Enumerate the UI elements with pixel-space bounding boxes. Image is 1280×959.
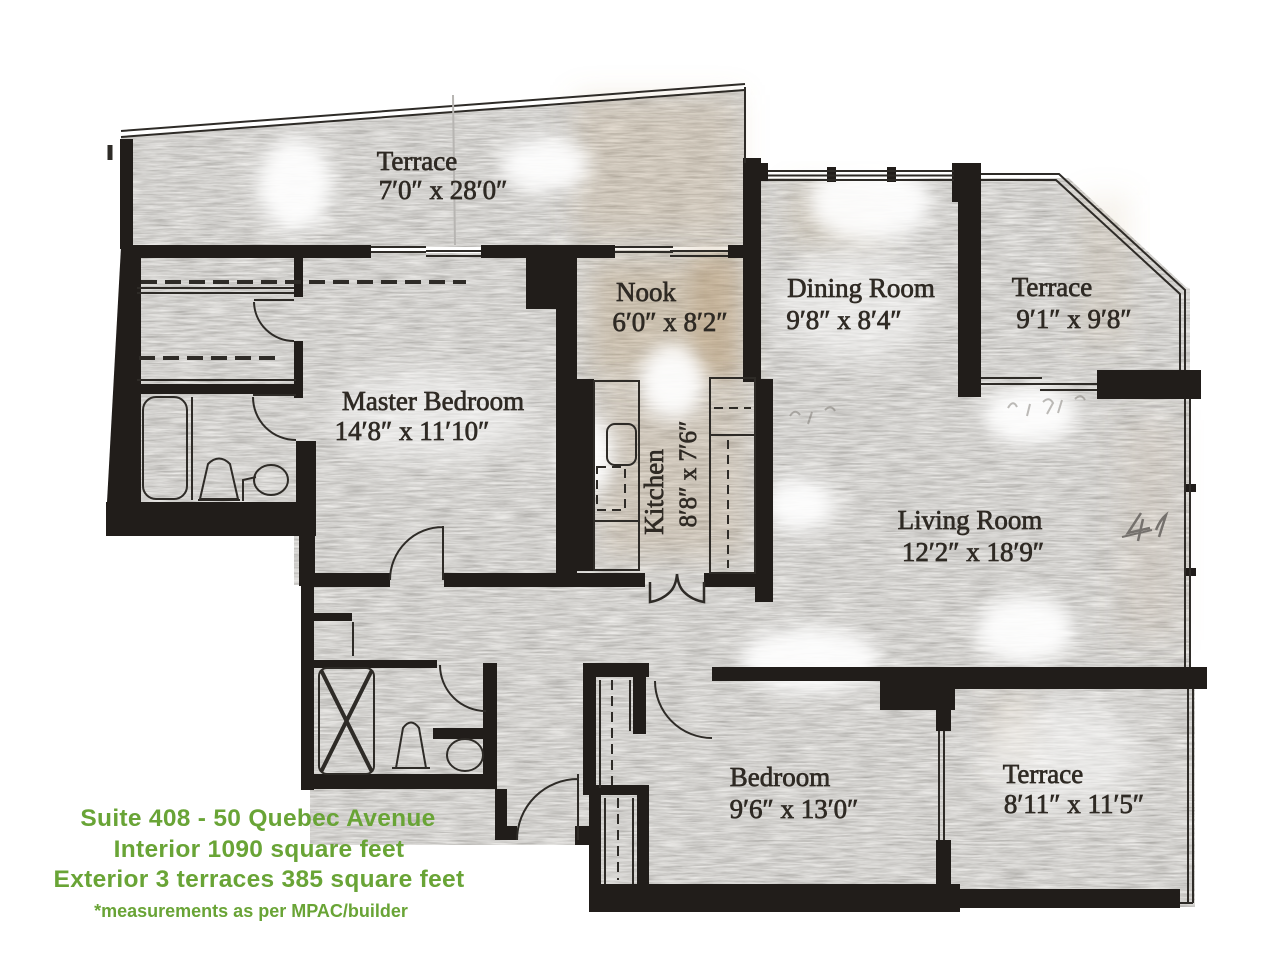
svg-text:Nook: Nook bbox=[616, 277, 676, 307]
svg-text:Terrace: Terrace bbox=[377, 146, 458, 176]
svg-text:Master Bedroom: Master Bedroom bbox=[342, 386, 524, 416]
svg-text:8′11″ x 11′5″: 8′11″ x 11′5″ bbox=[1004, 789, 1144, 819]
svg-text:12′2″ x 18′9″: 12′2″ x 18′9″ bbox=[902, 537, 1044, 567]
svg-text:Exterior 3 terraces 385 square: Exterior 3 terraces 385 square feet bbox=[54, 866, 465, 893]
svg-text:Suite 408 - 50 Quebec Avenue: Suite 408 - 50 Quebec Avenue bbox=[80, 805, 435, 832]
svg-text:9′8″ x 8′4″: 9′8″ x 8′4″ bbox=[786, 305, 901, 335]
svg-text:Terrace: Terrace bbox=[1003, 759, 1084, 789]
svg-text:9′6″ x 13′0″: 9′6″ x 13′0″ bbox=[730, 794, 859, 824]
svg-text:Terrace: Terrace bbox=[1012, 272, 1093, 302]
svg-text:Kitchen: Kitchen bbox=[639, 449, 669, 535]
svg-text:Living Room: Living Room bbox=[898, 505, 1043, 535]
svg-text:7′0″ x 28′0″: 7′0″ x 28′0″ bbox=[379, 175, 508, 205]
svg-text:Bedroom: Bedroom bbox=[730, 762, 831, 792]
svg-text:*measurements as per MPAC/buil: *measurements as per MPAC/builder bbox=[94, 901, 408, 921]
svg-text:6′0″ x 8′2″: 6′0″ x 8′2″ bbox=[612, 307, 727, 337]
svg-text:8′8″ x 7′6″: 8′8″ x 7′6″ bbox=[675, 421, 702, 528]
svg-text:9′1″ x 9′8″: 9′1″ x 9′8″ bbox=[1016, 304, 1131, 334]
svg-text:14′8″ x 11′10″: 14′8″ x 11′10″ bbox=[335, 416, 490, 446]
svg-text:Dining Room: Dining Room bbox=[787, 273, 935, 303]
svg-text:Interior 1090 square feet: Interior 1090 square feet bbox=[114, 836, 405, 863]
